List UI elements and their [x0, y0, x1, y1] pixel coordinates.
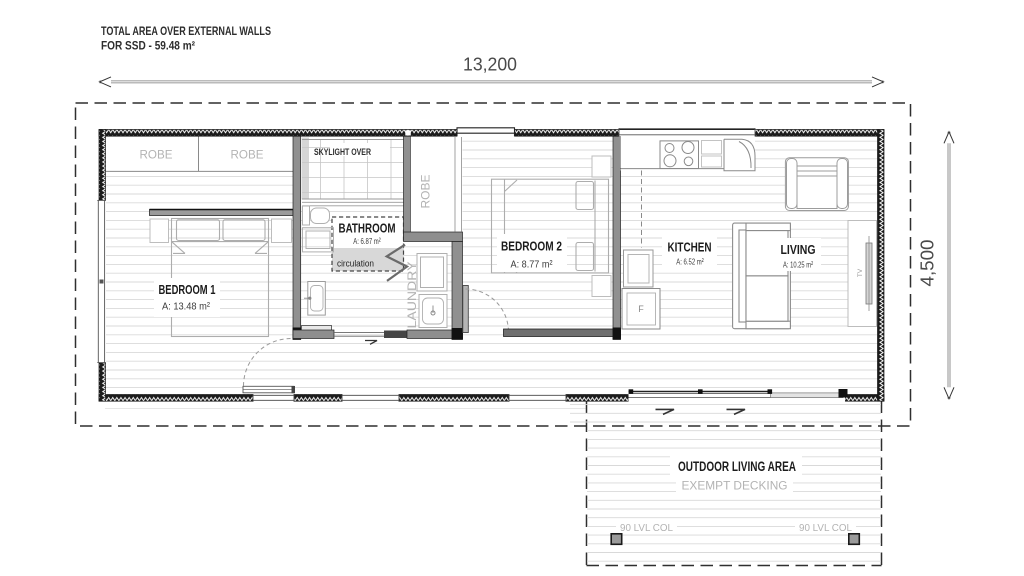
svg-text:BATHROOM: BATHROOM — [339, 222, 396, 236]
svg-text:SKYLIGHT OVER: SKYLIGHT OVER — [314, 147, 371, 158]
svg-text:BEDROOM 2: BEDROOM 2 — [501, 240, 562, 254]
svg-text:F: F — [638, 304, 644, 314]
svg-text:circulation: circulation — [337, 259, 374, 270]
svg-text:A: 8.77 m²: A: 8.77 m² — [511, 260, 554, 271]
svg-text:A: 13.48 m²: A: 13.48 m² — [162, 302, 211, 313]
svg-text:ROBE: ROBE — [421, 174, 433, 208]
svg-text:ROBE: ROBE — [231, 150, 264, 162]
svg-text:90 LVL COL: 90 LVL COL — [799, 523, 852, 534]
svg-text:4,500: 4,500 — [918, 240, 938, 287]
svg-text:90 LVL COL: 90 LVL COL — [620, 523, 673, 534]
svg-text:FOR SSD - 59.48 m²: FOR SSD - 59.48 m² — [101, 39, 195, 53]
svg-text:13,200: 13,200 — [463, 55, 517, 75]
svg-text:LIVING: LIVING — [781, 243, 816, 257]
svg-text:TV: TV — [857, 268, 864, 277]
svg-text:KITCHEN: KITCHEN — [668, 241, 712, 255]
svg-text:ROBE: ROBE — [140, 150, 173, 162]
svg-text:OUTDOOR LIVING AREA: OUTDOOR LIVING AREA — [678, 459, 796, 474]
svg-text:BEDROOM 1: BEDROOM 1 — [159, 283, 216, 297]
svg-text:EXEMPT DECKING: EXEMPT DECKING — [682, 481, 788, 493]
svg-text:A: 6.87 m²: A: 6.87 m² — [353, 236, 381, 246]
svg-text:A: 6.52 m²: A: 6.52 m² — [676, 257, 704, 267]
svg-text:TOTAL AREA OVER EXTERNAL WALLS: TOTAL AREA OVER EXTERNAL WALLS — [101, 24, 271, 38]
svg-text:A: 10.25 m²: A: 10.25 m² — [783, 260, 813, 270]
